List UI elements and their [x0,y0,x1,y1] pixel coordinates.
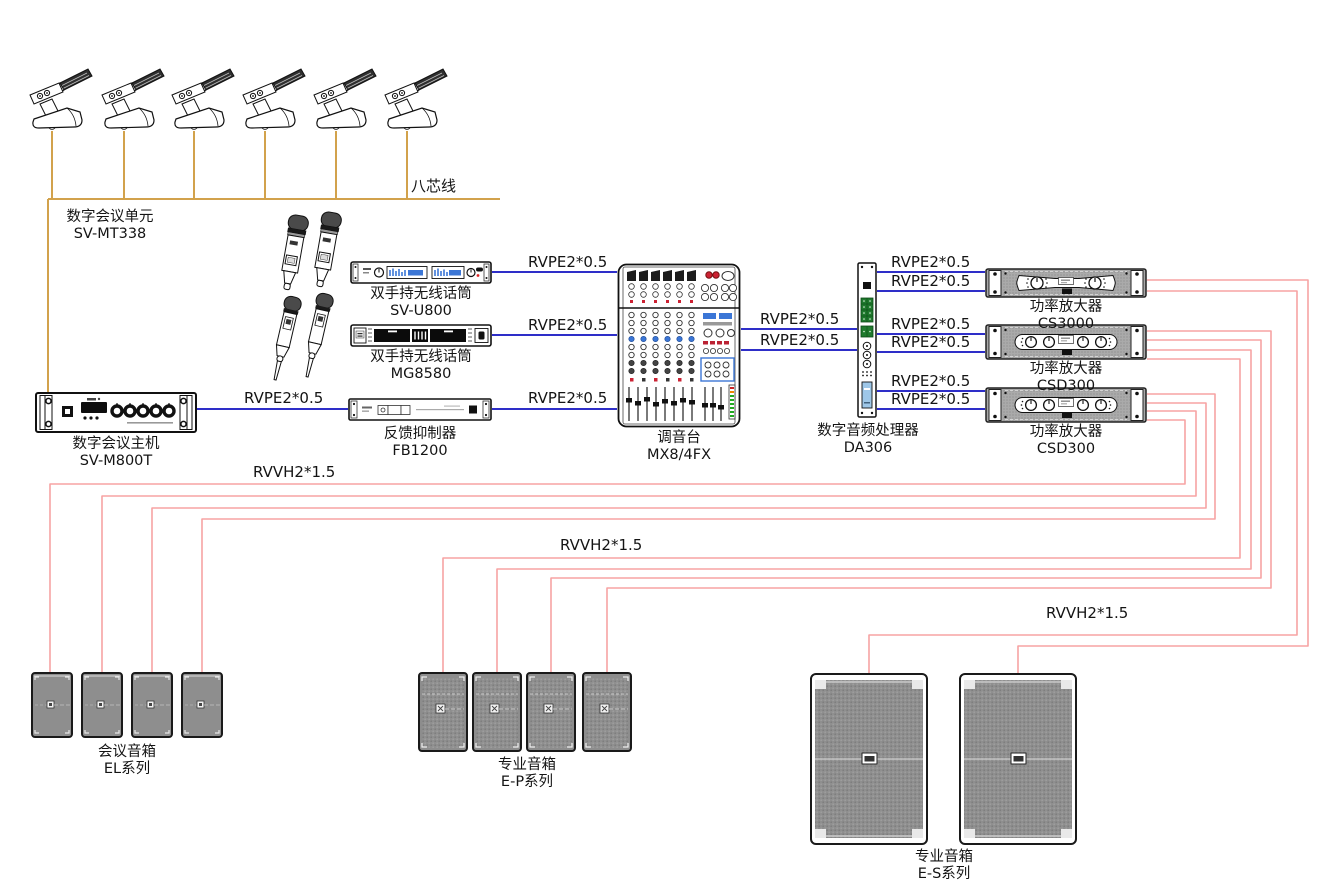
cable-label-rvpe: RVPE2*0.5 [891,315,970,333]
wiring-diagram: 八芯线 RVPE2*0.5 RVPE2*0.5 RVPE2*0.5 RVPE2*… [0,0,1328,891]
device-model: SV-MT338 [62,226,158,243]
device-name: 功率放大器 [1030,299,1103,316]
device-model: DA306 [817,440,919,457]
speaker-el [31,672,73,738]
label-amplifier-1: 功率放大器 CS3000 [1030,299,1103,332]
label-audio-processor: 数字音频处理器 DA306 [817,423,919,456]
speaker-el [131,672,173,738]
device-model: MX8/4FX [647,447,711,464]
device-name: 数字会议主机 [73,436,160,453]
device-model: MG8580 [370,366,472,383]
device-model: CSD300 [1030,378,1103,395]
device-model: CSD300 [1030,441,1103,458]
device-name: 调音台 [647,430,711,447]
label-amplifier-3: 功率放大器 CSD300 [1030,424,1103,457]
device-model: SV-U800 [370,303,472,320]
device-name: 反馈抑制器 [384,426,457,443]
label-mixer: 调音台 MX8/4FX [647,430,711,463]
label-conference-host: 数字会议主机 SV-M800T [73,436,160,469]
speaker-ep [526,672,576,752]
conference-mic [97,62,167,134]
device-conference-host [35,392,197,433]
conference-mic [25,62,95,134]
speaker-es [810,673,928,845]
cable-label-rvpe: RVPE2*0.5 [891,272,970,290]
label-feedback-suppressor: 反馈抑制器 FB1200 [384,426,457,459]
label-conference-unit: 数字会议单元 SV-MT338 [62,209,158,242]
label-wireless-mic-mg8580: 双手持无线话筒 MG8580 [370,349,472,382]
speaker-el [181,672,223,738]
conference-mic [238,62,308,134]
cable-label-rvvh: RVVH2*1.5 [560,536,642,554]
device-model: E-P系列 [498,774,556,791]
cable-label-rvpe: RVPE2*0.5 [528,389,607,407]
device-name: 功率放大器 [1030,361,1103,378]
device-model: E-S系列 [915,866,973,883]
device-name: 数字会议单元 [62,209,158,226]
device-name: 功率放大器 [1030,424,1103,441]
cable-label-rvpe: RVPE2*0.5 [528,253,607,271]
cable-label-rvpe: RVPE2*0.5 [528,316,607,334]
label-pro-speakers-ep: 专业音箱 E-P系列 [498,757,556,790]
conference-mic [309,62,379,134]
device-model: CS3000 [1030,316,1103,333]
device-name: 数字音频处理器 [817,423,919,440]
speaker-el [81,672,123,738]
device-name: 专业音箱 [915,849,973,866]
cable-label-eight-core: 八芯线 [411,175,456,196]
device-name: 专业音箱 [498,757,556,774]
cable-label-rvpe: RVPE2*0.5 [244,389,323,407]
cable-label-rvpe: RVPE2*0.5 [891,390,970,408]
cable-label-rvvh: RVVH2*1.5 [253,463,335,481]
conference-mic [380,62,450,134]
device-amplifier-cs3000 [985,268,1147,298]
device-receiver-mg8580 [350,324,492,347]
cable-label-rvvh: RVVH2*1.5 [1046,604,1128,622]
speaker-ep [472,672,522,752]
speaker-ep [582,672,632,752]
device-feedback-suppressor [348,398,492,421]
device-name: 双手持无线话筒 [370,349,472,366]
speaker-es [959,673,1077,845]
label-amplifier-2: 功率放大器 CSD300 [1030,361,1103,394]
cable-label-rvpe: RVPE2*0.5 [760,310,839,328]
label-wireless-mic-u800: 双手持无线话筒 SV-U800 [370,286,472,319]
label-pro-speakers-es: 专业音箱 E-S系列 [915,849,973,882]
cable-label-rvpe: RVPE2*0.5 [760,331,839,349]
cable-label-rvpe: RVPE2*0.5 [891,372,970,390]
device-name: 双手持无线话筒 [370,286,472,303]
conference-mic [167,62,237,134]
device-model: EL系列 [98,761,156,778]
device-model: FB1200 [384,443,457,460]
label-conference-speakers: 会议音箱 EL系列 [98,744,156,777]
speaker-ep [418,672,468,752]
device-model: SV-M800T [73,453,160,470]
device-audio-processor [857,262,877,418]
device-name: 会议音箱 [98,744,156,761]
device-mixer [617,263,741,428]
cable-label-rvpe: RVPE2*0.5 [891,253,970,271]
device-receiver-sv-u800 [350,261,492,284]
cable-label-rvpe: RVPE2*0.5 [891,333,970,351]
